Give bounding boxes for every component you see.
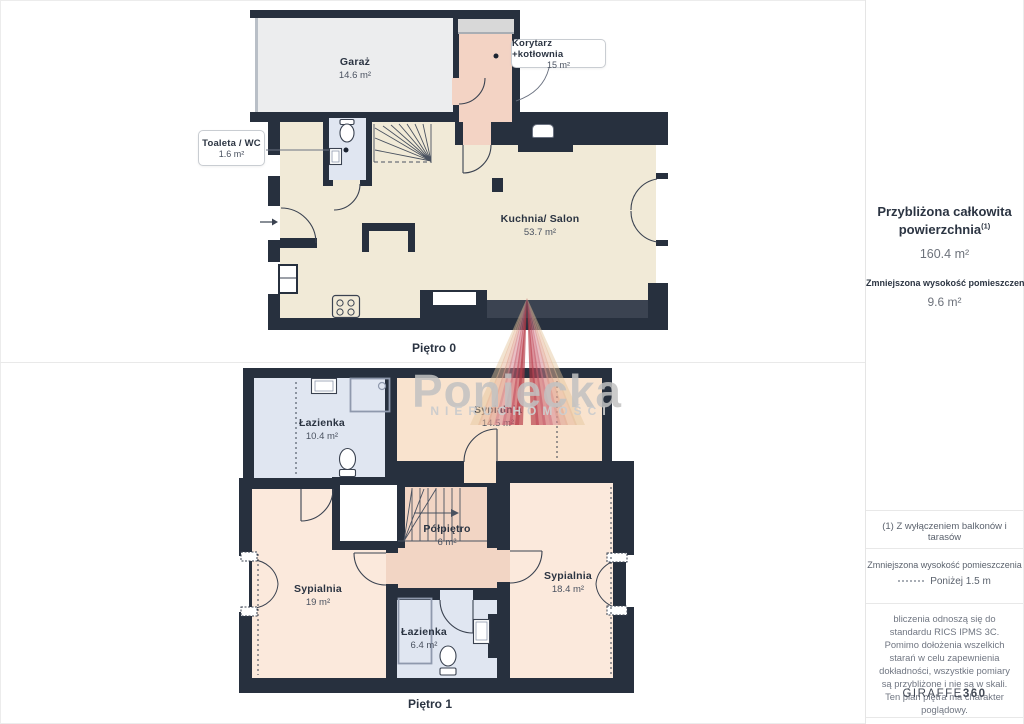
sidebar-divider bbox=[866, 603, 1023, 604]
giraffe360-logo: GIRAFFE360 bbox=[866, 688, 1023, 700]
total-area-value: 160.4 m² bbox=[866, 247, 1023, 261]
floorplan-page: Garaż 14.6 m² Kuchnia/ Salon 53.7 m² Pię… bbox=[0, 0, 1024, 724]
callout-hallway: Korytarz +kotłownia 15 m² bbox=[511, 39, 606, 68]
total-area-block: Przybliżona całkowita powierzchnia(1) 16… bbox=[866, 203, 1023, 309]
window-mullion bbox=[656, 240, 668, 246]
garage-hallway-doorway bbox=[452, 78, 460, 105]
summary-sidebar: Przybliżona całkowita powierzchnia(1) 16… bbox=[865, 0, 1023, 724]
watermark-subtitle: NIERUCHOMOŚCI bbox=[430, 404, 611, 418]
footnote-text: (1) Z wyłączeniem balkonów i tarasów bbox=[866, 521, 1023, 543]
room-halffloor-floor bbox=[398, 548, 497, 590]
entrance-opening bbox=[266, 206, 280, 240]
window-glazing bbox=[656, 145, 668, 283]
sidebar-divider bbox=[866, 717, 1023, 718]
bedroom1-doorway bbox=[464, 461, 496, 483]
floor0-label: Piętro 0 bbox=[412, 341, 456, 355]
reduced-height-title: Zmniejszona wysokość pomieszczenia bbox=[866, 278, 1023, 288]
room-hallway-floor bbox=[459, 34, 512, 122]
radiator-icon bbox=[532, 124, 554, 138]
room-wc-floor bbox=[329, 118, 366, 180]
room-label-kitchen: Kuchnia/ Salon 53.7 m² bbox=[501, 213, 580, 239]
halffloor-left-doorway bbox=[386, 553, 398, 584]
legend-title: Zmniejszona wysokość pomieszczenia bbox=[866, 560, 1023, 570]
kitchen-island-icon bbox=[362, 223, 415, 252]
cabinet-icon bbox=[278, 264, 298, 294]
window-opening bbox=[626, 555, 634, 607]
entry-threshold bbox=[458, 19, 514, 34]
column bbox=[492, 178, 503, 192]
room-label-bathroom1: Łazienka 10.4 m² bbox=[299, 417, 345, 443]
window-mullion bbox=[656, 173, 668, 179]
dashed-line-icon bbox=[898, 580, 924, 582]
footnote-marker: (1) bbox=[981, 221, 990, 230]
room-label-halffloor: Półpiętro 6 m² bbox=[423, 523, 470, 549]
wall-chunk bbox=[488, 614, 498, 658]
room-label-bedroom3: Sypialnia 18.4 m² bbox=[544, 570, 592, 596]
wall-corner bbox=[648, 283, 668, 330]
hallway-kitchen-doorway bbox=[463, 122, 491, 145]
reduced-height-value: 9.6 m² bbox=[866, 295, 1023, 309]
sidebar-divider bbox=[866, 510, 1023, 511]
room-label-bedroom2: Sypialnia 19 m² bbox=[294, 583, 342, 609]
disclaimer-text: bliczenia odnoszą się do standardu RICS … bbox=[866, 613, 1023, 717]
stairwell-void bbox=[340, 485, 397, 541]
bathroom2-doorway bbox=[440, 590, 473, 601]
legend-row: Poniżej 1.5 m bbox=[866, 576, 1023, 587]
window-opening bbox=[266, 155, 280, 176]
halffloor-right-doorway bbox=[497, 550, 510, 582]
floor1-label: Piętro 1 bbox=[408, 697, 452, 711]
total-area-title: Przybliżona całkowita powierzchnia(1) bbox=[866, 203, 1023, 238]
callout-toilet: Toaleta / WC 1.6 m² bbox=[198, 130, 265, 166]
section-divider bbox=[0, 362, 865, 363]
wc-doorway bbox=[333, 180, 360, 186]
window-opening bbox=[239, 556, 249, 612]
room-label-garage: Garaż 14.6 m² bbox=[339, 56, 371, 82]
sidebar-divider bbox=[866, 548, 1023, 549]
garage-door-line bbox=[255, 18, 258, 112]
room-label-bathroom2: Łazienka 6.4 m² bbox=[401, 626, 447, 652]
legend-value: Poniżej 1.5 m bbox=[930, 576, 991, 587]
